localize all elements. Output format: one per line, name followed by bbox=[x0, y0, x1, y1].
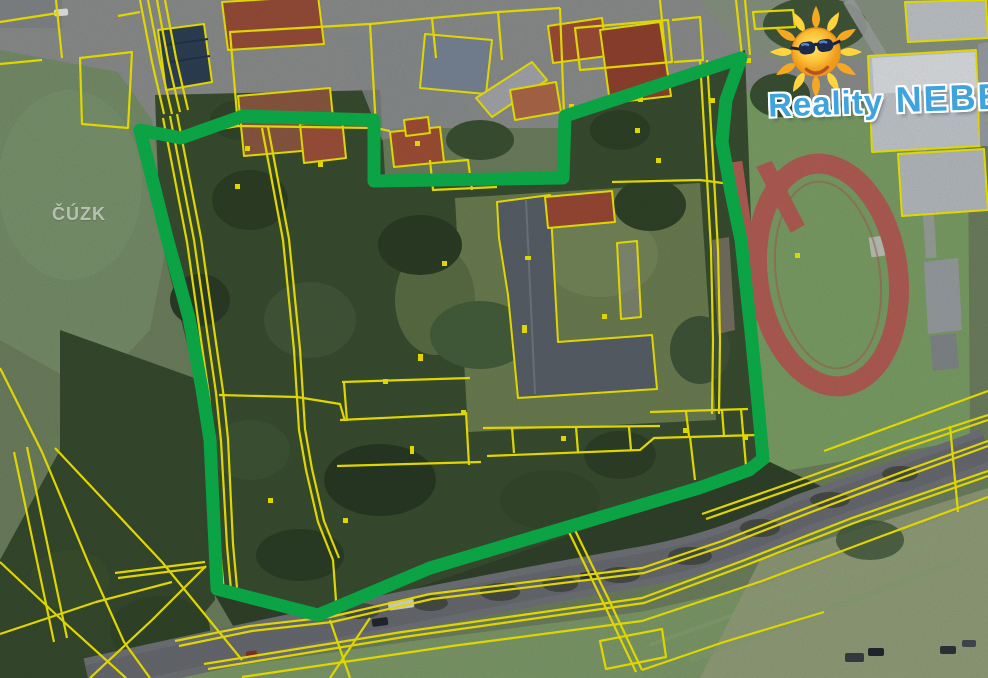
grain-overlay bbox=[0, 0, 988, 678]
map-canvas[interactable]: ČÚZK bbox=[0, 0, 988, 678]
cuzk-watermark: ČÚZK bbox=[52, 204, 106, 225]
aerial-map[interactable] bbox=[0, 0, 988, 678]
